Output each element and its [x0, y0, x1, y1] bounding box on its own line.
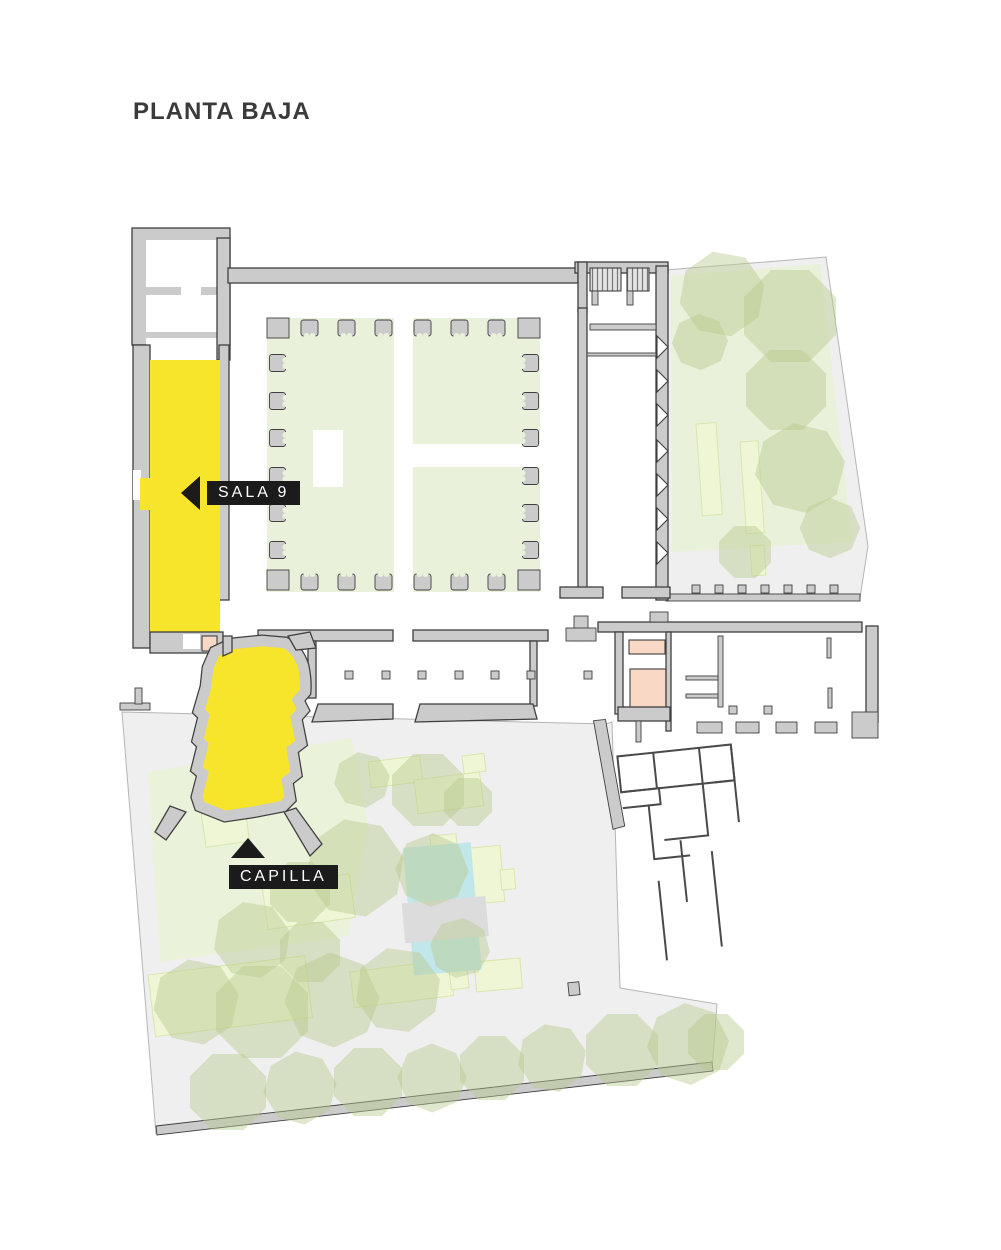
east-wing	[560, 262, 670, 600]
garden-north	[666, 248, 868, 601]
north-corridor-wall	[228, 268, 578, 283]
arrow-left-icon	[181, 476, 200, 510]
label-capilla: CAPILLA	[229, 838, 338, 889]
floor-plan	[0, 0, 1001, 1250]
label-sala-9-text: SALA 9	[207, 481, 300, 505]
label-capilla-text: CAPILLA	[229, 865, 338, 889]
arrow-up-icon	[231, 838, 265, 858]
cloister-courtyard	[267, 318, 540, 592]
label-sala-9: SALA 9	[181, 476, 300, 510]
floor-plan-page: PLANTA BAJA	[0, 0, 1001, 1250]
north-west-rooms	[132, 228, 230, 360]
east-rooms	[598, 612, 878, 742]
